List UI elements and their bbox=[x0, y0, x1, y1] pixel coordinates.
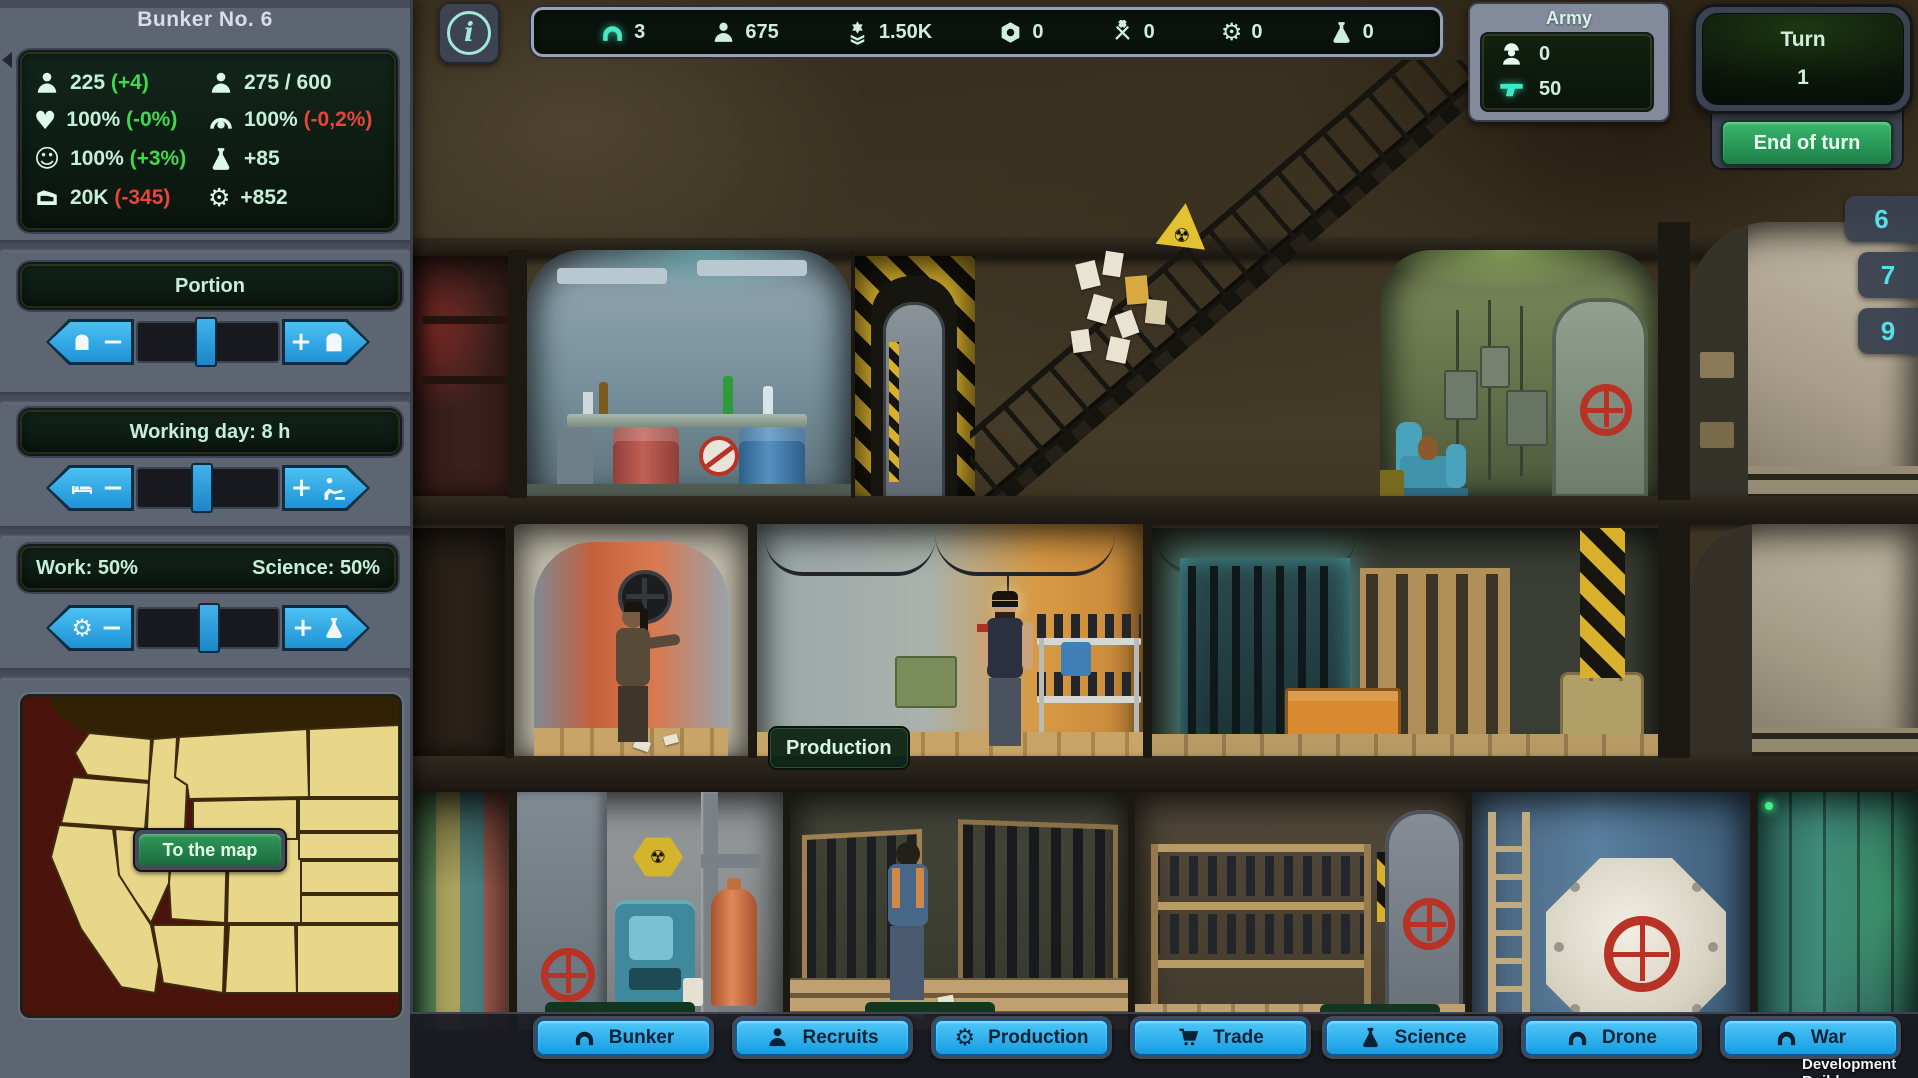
pipe-elbow bbox=[701, 854, 761, 868]
nav-recruits-button[interactable]: Recruits bbox=[732, 1016, 913, 1059]
slat-floor bbox=[1752, 728, 1918, 758]
bunk-shelves bbox=[1151, 844, 1371, 1004]
divider bbox=[0, 392, 410, 404]
bottle bbox=[723, 376, 733, 416]
bunker-icon bbox=[573, 1026, 596, 1049]
stat-capacity: 275 / 600 bbox=[208, 70, 382, 96]
person-icon bbox=[711, 20, 736, 45]
working-day-slider-track[interactable] bbox=[136, 467, 280, 509]
pillar bbox=[1465, 792, 1472, 1034]
pillar bbox=[1750, 792, 1757, 1034]
army-weapons: 50 bbox=[1498, 76, 1652, 103]
work-science-slider-thumb[interactable] bbox=[198, 603, 220, 653]
dweller-figure bbox=[600, 606, 670, 756]
stat-happiness: ☺ 100% (+3%) bbox=[34, 144, 208, 173]
money-icon bbox=[34, 185, 60, 211]
radiation-sign-icon: ☢ bbox=[633, 836, 683, 878]
working-day-slider-thumb[interactable] bbox=[191, 463, 213, 513]
electrical-box bbox=[1480, 346, 1510, 388]
collapse-arrow-icon[interactable] bbox=[2, 52, 12, 68]
gear-icon: ⚙ bbox=[955, 1025, 976, 1051]
corridor-opening bbox=[871, 276, 957, 498]
shelf bbox=[422, 376, 512, 384]
room-production[interactable] bbox=[755, 524, 1145, 758]
science-increase-button[interactable]: + bbox=[282, 605, 370, 651]
resource-tools: 0 bbox=[1110, 20, 1155, 45]
stat-population: 225 (+4) bbox=[34, 70, 208, 96]
room-label-production: Production bbox=[768, 726, 910, 770]
divider bbox=[0, 668, 410, 680]
room-curtains[interactable] bbox=[412, 792, 512, 1034]
work-science-slider: ⚙ − + bbox=[46, 604, 370, 652]
room-label-stub bbox=[865, 1002, 995, 1012]
bed-icon bbox=[70, 476, 94, 500]
info-icon: i bbox=[447, 11, 491, 55]
smiley-icon: ☺ bbox=[34, 144, 60, 173]
paper-note bbox=[1102, 251, 1124, 278]
science-share-label: Science: 50% bbox=[252, 557, 380, 580]
nav-production-button[interactable]: ⚙ Production bbox=[931, 1016, 1112, 1059]
turn-value: 1 bbox=[1797, 66, 1809, 90]
gear-icon: ⚙ bbox=[71, 614, 93, 642]
ceiling-panel bbox=[697, 260, 807, 276]
corridor-door bbox=[883, 302, 945, 498]
dweller-figure bbox=[973, 594, 1043, 758]
cable-swag bbox=[935, 534, 1115, 576]
portion-header: Portion bbox=[18, 262, 402, 310]
blue-barrel bbox=[1061, 642, 1091, 676]
portion-slider-thumb[interactable] bbox=[195, 317, 217, 367]
valve-wheel bbox=[1403, 898, 1455, 950]
pillar bbox=[1658, 524, 1690, 758]
bread-icon bbox=[320, 328, 348, 356]
pillar bbox=[509, 792, 517, 1034]
soldier-icon bbox=[1498, 41, 1525, 68]
army-stats: 0 50 bbox=[1480, 32, 1654, 112]
shelter-person-icon bbox=[208, 107, 234, 133]
ladder-rungs bbox=[1488, 832, 1530, 992]
army-panel: Army 0 50 bbox=[1468, 2, 1670, 122]
electrical-box bbox=[1444, 370, 1478, 420]
vault-door bbox=[1546, 858, 1726, 1034]
pillar bbox=[1658, 222, 1690, 500]
resource-bar: 3 675 1.50K 0 0 ⚙ 0 0 bbox=[531, 7, 1443, 57]
room-label-stub bbox=[545, 1002, 695, 1012]
vault-wheel bbox=[1604, 916, 1680, 992]
stat-money: 20K (-345) bbox=[34, 183, 208, 212]
dark-opening bbox=[1690, 222, 1748, 500]
army-title: Army bbox=[1470, 8, 1668, 29]
paper-note bbox=[1071, 329, 1092, 353]
bottle bbox=[599, 382, 608, 416]
room-weapon-storage[interactable] bbox=[788, 792, 1130, 1034]
bunker-title: Bunker No. 6 bbox=[0, 8, 410, 32]
room-storage-left[interactable] bbox=[412, 256, 522, 498]
bottle bbox=[1380, 470, 1404, 498]
person-icon bbox=[34, 70, 60, 96]
bunker-door bbox=[1385, 810, 1463, 1034]
divider bbox=[0, 526, 410, 538]
crate bbox=[1700, 352, 1734, 378]
crate bbox=[1700, 422, 1734, 448]
pillar bbox=[851, 250, 855, 498]
room-quarters[interactable] bbox=[512, 524, 750, 758]
resource-population: 675 bbox=[711, 20, 778, 45]
resource-nuts: 0 bbox=[998, 20, 1043, 45]
room-boiler[interactable]: ☢ bbox=[515, 792, 785, 1034]
bunker-sidebar: Bunker No. 6 225 (+4) 275 / 600 ♥ 100% (… bbox=[0, 0, 413, 1078]
pillar bbox=[748, 524, 757, 758]
room-hazard-corridor[interactable] bbox=[853, 256, 975, 498]
pallet-floor bbox=[1150, 734, 1658, 758]
cable-swag bbox=[765, 538, 935, 576]
floor-tab-9[interactable]: 9 bbox=[1858, 308, 1918, 354]
heart-icon: ♥ bbox=[34, 106, 56, 135]
nav-science-button[interactable]: Science bbox=[1322, 1016, 1503, 1059]
rank-icon bbox=[845, 20, 870, 45]
resource-rank: 1.50K bbox=[845, 20, 932, 45]
room-empty-right-2[interactable] bbox=[1690, 524, 1918, 758]
room-lockers[interactable] bbox=[1755, 792, 1918, 1034]
floor-tab-7[interactable]: 7 bbox=[1858, 252, 1918, 298]
stat-science-rate: +85 bbox=[208, 144, 382, 173]
pillar bbox=[1128, 792, 1135, 1034]
stat-defense: 100% (-0,2%) bbox=[208, 106, 382, 135]
turn-label: Turn bbox=[1780, 28, 1825, 52]
rifle-rack bbox=[958, 819, 1118, 1005]
green-crate bbox=[895, 656, 957, 708]
room-bar[interactable] bbox=[527, 250, 851, 498]
conduit bbox=[1488, 300, 1491, 480]
bread-icon bbox=[70, 330, 94, 354]
nav-drone-button[interactable]: Drone bbox=[1521, 1016, 1702, 1059]
dome-icon bbox=[1775, 1026, 1798, 1049]
gear-icon: ⚙ bbox=[1221, 18, 1243, 46]
person-icon bbox=[766, 1026, 789, 1049]
dev-build-label: Development Build bbox=[1802, 1056, 1918, 1078]
pistol-icon bbox=[1498, 76, 1525, 103]
turn-screen: Turn 1 bbox=[1702, 13, 1904, 105]
hammers-icon bbox=[1110, 20, 1135, 45]
nav-trade-button[interactable]: Trade bbox=[1130, 1016, 1311, 1059]
flask-icon bbox=[322, 616, 346, 640]
resource-bunkers: 3 bbox=[600, 20, 645, 45]
shelf bbox=[422, 316, 512, 324]
end-of-turn-button[interactable]: End of turn bbox=[1721, 120, 1893, 166]
stat-health: ♥ 100% (-0%) bbox=[34, 106, 208, 135]
room-vault[interactable] bbox=[1470, 792, 1752, 1034]
room-utility[interactable] bbox=[1380, 250, 1658, 498]
working-day-slider: − + bbox=[46, 464, 370, 512]
ceiling-panel bbox=[557, 268, 667, 284]
pillar bbox=[508, 250, 527, 498]
flask-icon bbox=[1329, 20, 1354, 45]
work-science-header: Work: 50% Science: 50% bbox=[18, 544, 398, 592]
working-day-increase-button[interactable]: + bbox=[282, 465, 370, 511]
hazard-pillar bbox=[1580, 528, 1625, 678]
floor-tab-6[interactable]: 6 bbox=[1845, 196, 1918, 242]
bunker-stats-panel: 225 (+4) 275 / 600 ♥ 100% (-0%) 100% (-0… bbox=[18, 50, 398, 232]
sidebar-top-strip bbox=[0, 0, 410, 8]
divider bbox=[0, 240, 410, 252]
pillar bbox=[783, 792, 790, 1034]
bunker-door bbox=[1552, 298, 1648, 498]
dweller-figure bbox=[880, 842, 940, 1012]
bottle bbox=[763, 386, 773, 416]
game-screen: ☢ bbox=[0, 0, 1918, 1078]
flask-icon bbox=[1359, 1026, 1382, 1049]
valve-wheel bbox=[1580, 384, 1632, 436]
valve-wheel bbox=[541, 948, 595, 1002]
flask-icon bbox=[208, 146, 234, 172]
door-panel bbox=[515, 792, 607, 1034]
working-day-header: Working day: 8 h bbox=[18, 408, 402, 456]
teddy-bear bbox=[1418, 436, 1438, 460]
door-hazard-stripe bbox=[889, 342, 899, 482]
pillar bbox=[505, 524, 514, 758]
gear-icon: ⚙ bbox=[208, 183, 230, 212]
portion-increase-button[interactable]: + bbox=[282, 319, 370, 365]
no-smoking-sign bbox=[696, 433, 741, 478]
bunker-icon bbox=[600, 20, 625, 45]
nut-icon bbox=[998, 20, 1023, 45]
cart-icon bbox=[1177, 1026, 1200, 1049]
resource-gears: ⚙ 0 bbox=[1221, 18, 1263, 46]
electrical-box bbox=[1506, 390, 1548, 446]
dark-opening bbox=[1690, 524, 1752, 758]
nav-war-button[interactable]: War bbox=[1720, 1016, 1901, 1059]
paper-note bbox=[1125, 275, 1149, 305]
bar-counter bbox=[567, 414, 807, 427]
locker-doors bbox=[1755, 792, 1918, 1034]
slat-floor bbox=[1748, 466, 1918, 500]
person-icon bbox=[208, 70, 234, 96]
turn-panel: Turn 1 bbox=[1693, 4, 1913, 114]
gas-cylinder bbox=[711, 888, 757, 1006]
resource-science: 0 bbox=[1329, 20, 1374, 45]
nav-bunker-button[interactable]: Bunker bbox=[533, 1016, 714, 1059]
to-the-map-button[interactable]: To the map bbox=[133, 828, 287, 872]
portion-slider: − + bbox=[46, 318, 370, 366]
floor-slab-2 bbox=[410, 756, 1918, 790]
portion-decrease-button[interactable]: − bbox=[46, 319, 134, 365]
pillar bbox=[1143, 524, 1152, 758]
floor-slab-1 bbox=[410, 496, 1918, 524]
room-dark-left-2[interactable] bbox=[412, 528, 508, 758]
info-button[interactable]: i bbox=[438, 2, 500, 64]
work-science-slider-track[interactable] bbox=[136, 607, 280, 649]
work-increase-button[interactable]: ⚙ − bbox=[46, 605, 134, 651]
stat-production-rate: ⚙ +852 bbox=[208, 183, 382, 212]
army-soldiers: 0 bbox=[1498, 41, 1652, 68]
working-day-decrease-button[interactable]: − bbox=[46, 465, 134, 511]
work-share-label: Work: 50% bbox=[36, 557, 138, 580]
portion-slider-track[interactable] bbox=[136, 321, 280, 363]
worker-icon bbox=[320, 475, 347, 502]
bottle bbox=[583, 392, 593, 416]
dome-icon bbox=[1566, 1026, 1589, 1049]
room-bunks[interactable] bbox=[1133, 792, 1467, 1034]
paper-note bbox=[1145, 299, 1167, 325]
status-led bbox=[1765, 802, 1773, 810]
room-armory[interactable] bbox=[1150, 528, 1658, 758]
